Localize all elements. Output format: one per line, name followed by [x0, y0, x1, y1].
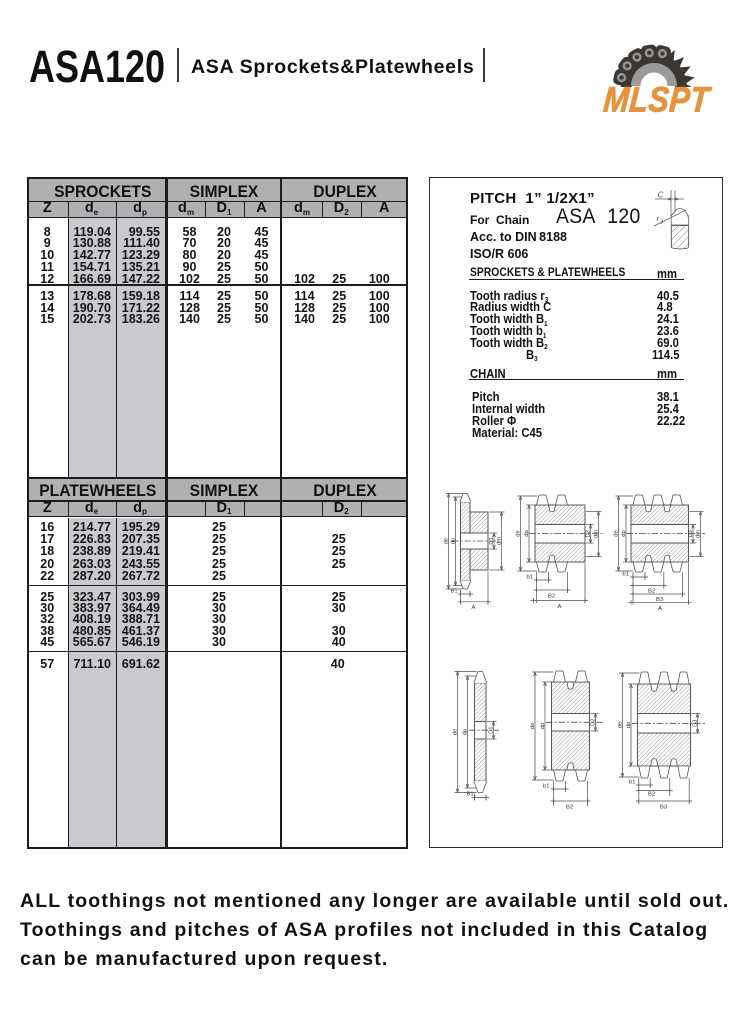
svg-text:D1: D1 [488, 726, 494, 733]
svg-text:D2: D2 [585, 530, 591, 537]
svg-text:D3: D3 [688, 530, 694, 537]
svg-text:de: de [452, 729, 458, 735]
svg-text:B2: B2 [566, 805, 573, 811]
svg-text:dp: dp [524, 530, 530, 536]
svg-text:de: de [443, 538, 449, 544]
svg-text:B1: B1 [451, 589, 458, 595]
svg-text:b1: b1 [543, 784, 549, 790]
svg-text:dp: dp [540, 723, 546, 729]
svg-text:de: de [530, 723, 536, 729]
svg-text:D1: D1 [489, 537, 495, 544]
svg-text:de: de [617, 722, 623, 728]
svg-text:B2: B2 [548, 594, 555, 600]
svg-text:dp: dp [626, 722, 632, 728]
svg-text:D3: D3 [692, 719, 698, 726]
svg-text:B1: B1 [467, 792, 474, 798]
svg-text:A: A [558, 604, 562, 610]
svg-text:b1: b1 [527, 575, 533, 581]
svg-text:C: C [658, 191, 664, 200]
svg-text:b1: b1 [623, 572, 629, 578]
svg-text:de: de [613, 530, 619, 536]
svg-text:B3: B3 [660, 805, 667, 811]
svg-text:dp: dp [462, 729, 468, 735]
svg-text:dm: dm [695, 530, 701, 538]
svg-text:D2: D2 [590, 718, 596, 725]
svg-text:A: A [658, 606, 662, 612]
svg-text:b1: b1 [629, 780, 635, 786]
svg-text:dm: dm [496, 537, 502, 545]
svg-text:dp: dp [621, 530, 627, 536]
svg-text:de: de [515, 530, 521, 536]
svg-text:3: 3 [660, 220, 664, 226]
svg-text:A: A [472, 605, 476, 611]
svg-text:dm: dm [593, 530, 599, 538]
svg-text:B2: B2 [648, 792, 655, 798]
